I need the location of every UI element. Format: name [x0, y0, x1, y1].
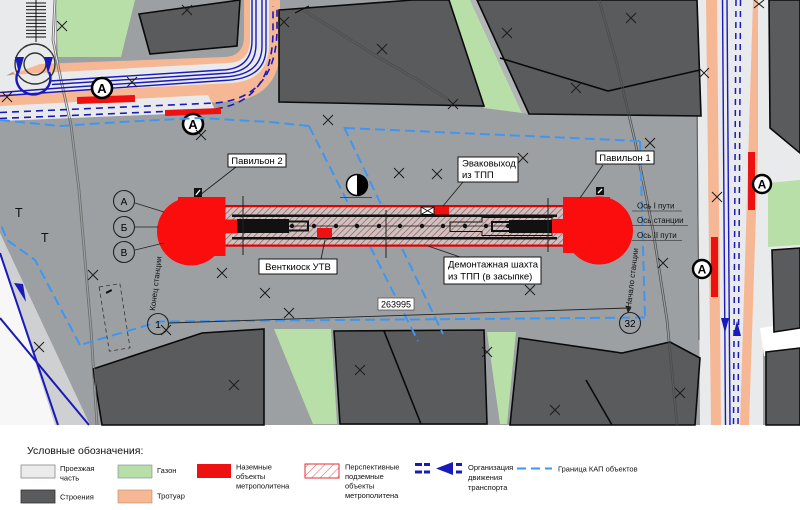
svg-text:Строения: Строения: [60, 493, 94, 502]
svg-text:Павильон 2: Павильон 2: [231, 156, 282, 167]
svg-text:объекты: объекты: [236, 472, 265, 481]
svg-text:Т: Т: [41, 231, 49, 245]
svg-text:движения: движения: [468, 473, 502, 482]
svg-text:Б: Б: [121, 223, 128, 234]
svg-text:объекты: объекты: [345, 482, 374, 491]
svg-text:32: 32: [624, 319, 636, 330]
svg-text:Эваковыход: Эваковыход: [462, 159, 516, 170]
svg-text:Ось станции: Ось станции: [637, 216, 684, 225]
svg-text:Наземные: Наземные: [236, 463, 272, 472]
svg-text:Ось II пути: Ось II пути: [637, 231, 677, 240]
svg-text:Тротуар: Тротуар: [157, 492, 185, 501]
svg-text:А: А: [698, 263, 707, 277]
svg-text:Условные обозначения:: Условные обозначения:: [27, 445, 143, 457]
svg-text:подземные: подземные: [345, 472, 384, 481]
svg-text:Организация: Организация: [468, 463, 513, 472]
svg-text:из ТПП (в засыпке): из ТПП (в засыпке): [448, 272, 532, 283]
svg-text:метрополитена: метрополитена: [236, 482, 290, 491]
svg-text:Перспективные: Перспективные: [345, 463, 399, 472]
svg-text:часть: часть: [60, 474, 79, 483]
svg-text:Газон: Газон: [157, 466, 176, 475]
svg-text:метрополитена: метрополитена: [345, 491, 399, 500]
svg-text:из ТПП: из ТПП: [462, 170, 494, 181]
svg-text:А: А: [758, 178, 767, 192]
svg-text:А: А: [97, 81, 107, 96]
svg-text:Венткиоск УТВ: Венткиоск УТВ: [265, 262, 331, 273]
svg-text:Демонтажная шахта: Демонтажная шахта: [448, 260, 539, 271]
svg-text:Граница КАП объектов: Граница КАП объектов: [558, 465, 638, 474]
svg-text:Проезжая: Проезжая: [60, 464, 94, 473]
svg-text:А: А: [121, 197, 128, 208]
svg-text:В: В: [121, 248, 128, 259]
svg-text:А: А: [188, 117, 198, 132]
svg-text:транспорта: транспорта: [468, 483, 508, 492]
svg-text:Ось I пути: Ось I пути: [637, 202, 675, 211]
svg-text:263995: 263995: [381, 300, 411, 310]
svg-text:Павильон 1: Павильон 1: [599, 153, 650, 164]
svg-text:Т: Т: [15, 206, 23, 220]
svg-text:1: 1: [155, 320, 161, 331]
